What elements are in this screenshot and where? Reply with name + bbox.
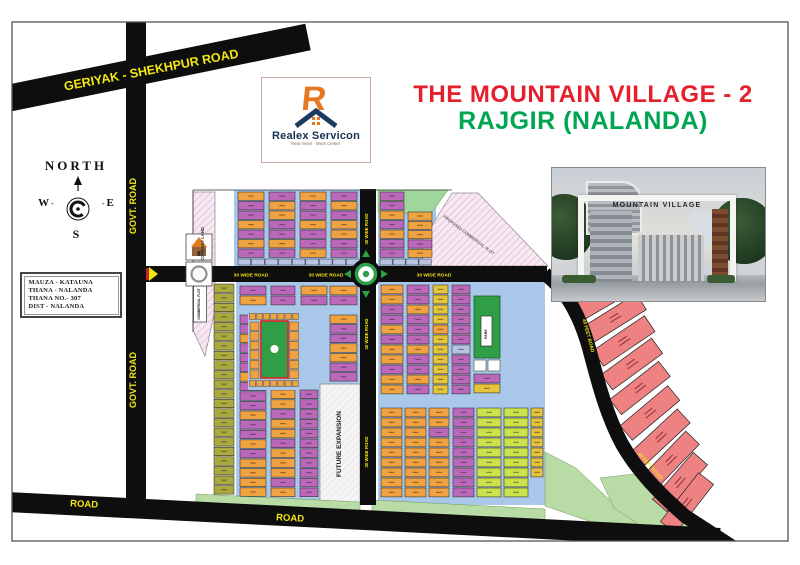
entrance-gate: MOUNTAIN VILLAGE <box>578 195 736 281</box>
logo-tagline: Real Asset - Work Center <box>291 142 340 146</box>
map-label: 30 WIDE ROAD <box>417 273 452 279</box>
compass-south-label: S <box>36 227 116 242</box>
info-mauza: MAUZA - KATAUNA <box>29 279 114 287</box>
compass-rose: NORTH W - - E S <box>36 158 116 242</box>
map-label: COMMERCIAL PLOT <box>197 288 201 319</box>
map-label: ROAD <box>70 498 99 510</box>
gate-photo: MOUNTAIN VILLAGE <box>551 167 766 302</box>
info-thana-no: THANA NO.- 307 <box>29 295 114 303</box>
site-plan-poster: GERIYAK - SHEKHPUR ROADGOVT. ROADGOVT. R… <box>0 0 800 565</box>
info-thana: THANA - NALANDA <box>29 287 114 295</box>
title-line2: RAJGIR (NALANDA) <box>378 108 788 136</box>
map-label: FUTURE EXPANSION <box>336 411 343 477</box>
compass-west-label: W <box>38 197 49 209</box>
compass-north-label: NORTH <box>36 158 116 174</box>
map-label: 30 WIDE ROAD <box>364 213 369 244</box>
compass-icon <box>56 175 100 231</box>
gate-caption: MOUNTAIN VILLAGE <box>578 202 736 209</box>
well-icon <box>192 267 207 282</box>
map-label: GOVT. ROAD <box>128 352 138 409</box>
gate-pillar <box>712 209 728 281</box>
logo-r-icon: R <box>284 80 348 132</box>
logo: R Realex Servicon Real Asset - Work Cent… <box>261 77 371 163</box>
map-label: 30 WIDE ROAD <box>364 318 369 349</box>
park-fountain <box>271 345 279 353</box>
map-label: ROAD <box>276 512 305 524</box>
logo-name: Realex Servicon <box>272 130 360 142</box>
map-label: COMPANY LAND <box>200 227 205 261</box>
gate-slats <box>638 232 704 281</box>
info-district: DIST - NALANDA <box>29 303 114 311</box>
title-line1: THE MOUNTAIN VILLAGE - 2 <box>378 82 788 108</box>
map-label: PARK <box>484 329 488 339</box>
gate-left-panel <box>590 211 632 281</box>
map-label: 30 WIDE ROAD <box>309 273 344 279</box>
location-info-box: MAUZA - KATAUNA THANA - NALANDA THANA NO… <box>20 272 122 318</box>
compass-east-label: E <box>107 197 114 209</box>
hedge <box>707 275 735 283</box>
hedge <box>562 275 596 283</box>
map-label: GOVT. ROAD <box>128 178 138 235</box>
map-label: 30 WIDE ROAD <box>364 436 369 467</box>
map-label: 30 WIDE ROAD <box>234 273 269 279</box>
page-title: THE MOUNTAIN VILLAGE - 2 RAJGIR (NALANDA… <box>378 82 788 136</box>
